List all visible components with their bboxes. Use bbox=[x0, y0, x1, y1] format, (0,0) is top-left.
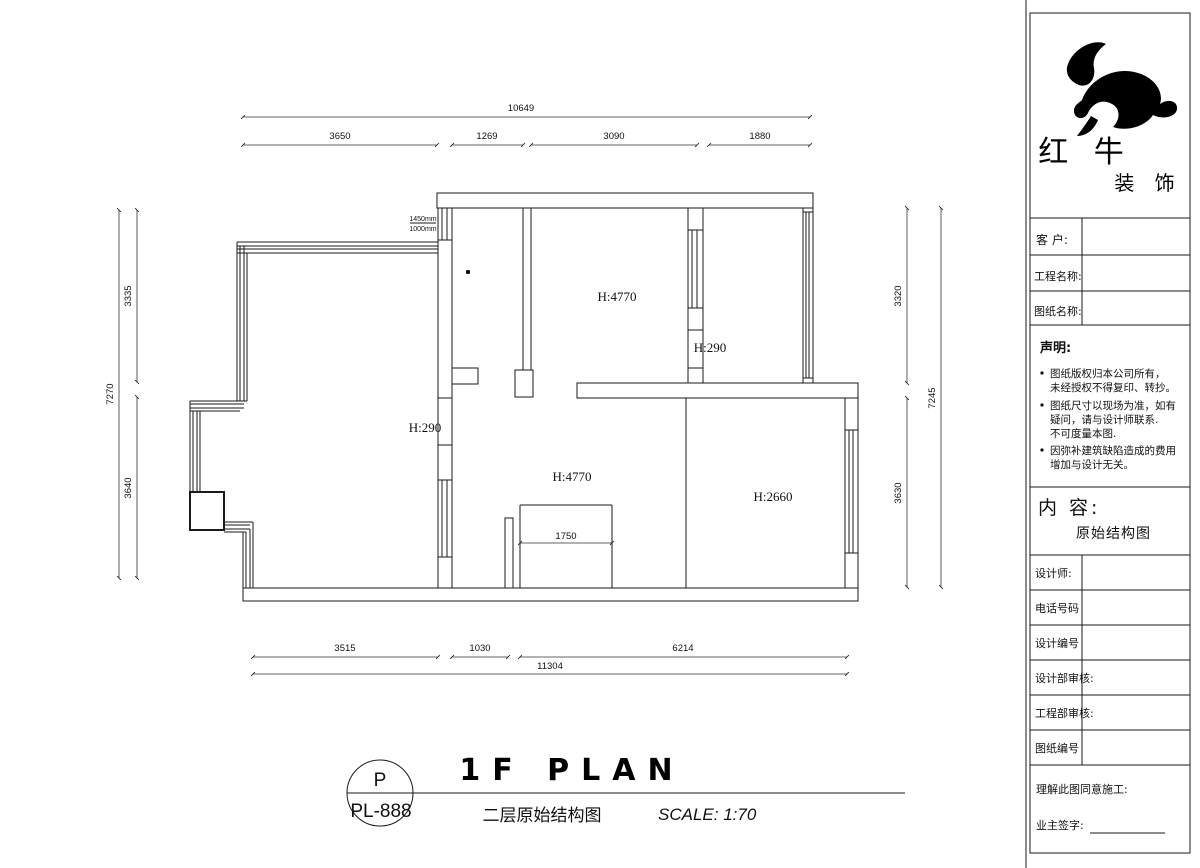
window-lower-horizontal bbox=[224, 522, 253, 532]
page-title-cn: 二层原始结构图 bbox=[483, 806, 602, 826]
statement-item2-line1: 图纸尺寸以现场为准，如有 bbox=[1050, 399, 1176, 412]
drawing-code-bottom: PL-888 bbox=[350, 801, 411, 822]
window-balcony-left bbox=[237, 242, 247, 401]
row-design-no-label: 设计编号 bbox=[1035, 636, 1079, 650]
statement-item3-line1: 因弥补建筑缺陷造成的费用 bbox=[1050, 444, 1176, 457]
floor-plan-canvas: H:4770 H:290 H:290 H:4770 H:2660 1750 14… bbox=[0, 0, 1200, 868]
label-left-beam-height: H:290 bbox=[409, 420, 442, 435]
dim-right-segbottom: 3630 bbox=[893, 482, 904, 503]
row-drawing-no-label: 图纸编号 bbox=[1035, 741, 1079, 755]
statement-item1-line1: 图纸版权归本公司所有， bbox=[1050, 367, 1166, 380]
point-marker bbox=[466, 270, 470, 274]
row-designer-label: 设计师: bbox=[1035, 567, 1072, 580]
brand-logo-bull-icon bbox=[1067, 42, 1177, 136]
row-engineering-review-label: 工程部审核: bbox=[1035, 706, 1094, 720]
dim-top-seg4: 1880 bbox=[749, 131, 770, 142]
window-left-middle-top bbox=[438, 208, 452, 240]
drawing-code-top: P bbox=[374, 770, 387, 791]
dim-right-segtop: 3320 bbox=[893, 285, 904, 306]
column-block bbox=[190, 492, 224, 530]
footer-agree-label: 理解此图同意施工: bbox=[1036, 782, 1128, 796]
window-step-vertical bbox=[190, 401, 200, 492]
title-block: 红 牛 装 饰 客 户: 工程名称: 图纸名称: 声明: 图纸版权归本公司所有，… bbox=[1026, 0, 1190, 868]
brand-name: 红 牛 bbox=[1038, 135, 1132, 170]
row-design-review-label: 设计部审核: bbox=[1035, 671, 1094, 685]
wall-stub-left bbox=[452, 368, 478, 384]
dim-left-segtop: 3335 bbox=[123, 285, 134, 306]
dim-right-overall: 7245 bbox=[927, 387, 938, 408]
label-right-room-height: H:2660 bbox=[754, 489, 793, 504]
statement-item2-line2: 疑问，请与设计师联系. bbox=[1050, 413, 1158, 426]
dim-top-seg3: 3090 bbox=[603, 131, 624, 142]
label-mid-room-height: H:4770 bbox=[553, 469, 592, 484]
floor-plan-walls bbox=[190, 193, 858, 601]
window-balcony-top bbox=[237, 242, 438, 253]
field-drawing-name-label: 图纸名称: bbox=[1034, 304, 1082, 318]
statement-item1-line2: 未经授权不得复印、转抄。 bbox=[1050, 381, 1176, 394]
dim-left-segbottom: 3640 bbox=[123, 477, 134, 498]
dim-bottom-overall: 11304 bbox=[537, 661, 563, 672]
content-value: 原始结构图 bbox=[1076, 526, 1151, 542]
statement-item2-line3: 不可度量本图. bbox=[1050, 427, 1116, 440]
field-project-name-label: 工程名称: bbox=[1034, 269, 1082, 283]
content-heading: 内 容: bbox=[1038, 497, 1100, 519]
wall-right-upper-window bbox=[803, 208, 813, 383]
label-inner-width: 1750 bbox=[555, 531, 576, 542]
statement-heading: 声明: bbox=[1039, 340, 1071, 356]
window-step-horizontal bbox=[190, 401, 247, 411]
label-window-sill: 1000mm bbox=[409, 226, 436, 233]
wall-middle-band bbox=[577, 383, 858, 398]
footer-owner-sign-label: 业主签字: bbox=[1036, 818, 1084, 832]
page-title-en: 1F PLAN bbox=[459, 753, 684, 788]
field-customer-label: 客 户: bbox=[1036, 232, 1068, 247]
wall-top-band bbox=[437, 193, 813, 208]
bullet-icon bbox=[1040, 448, 1043, 451]
label-window-width: 1450mm bbox=[409, 216, 436, 223]
brand-subname: 装 饰 bbox=[1114, 171, 1181, 195]
label-top-room-height: H:4770 bbox=[598, 289, 637, 304]
wall-bottom-band bbox=[243, 588, 858, 601]
dim-bottom-seg1: 3515 bbox=[334, 643, 355, 654]
dim-bottom-seg3: 6214 bbox=[672, 643, 693, 654]
bullet-icon bbox=[1040, 371, 1043, 374]
dim-top-seg1: 3650 bbox=[329, 131, 350, 142]
statement-item3-line2: 增加与设计无关。 bbox=[1050, 458, 1134, 471]
wall-interior-top bbox=[688, 208, 703, 383]
drawing-sheet: H:4770 H:290 H:290 H:4770 H:2660 1750 14… bbox=[0, 0, 1200, 868]
row-phone-label: 电话号码 bbox=[1035, 602, 1079, 615]
wall-right-lower-window bbox=[845, 398, 858, 601]
wall-inner-room bbox=[520, 505, 612, 588]
scale-label: SCALE: 1:70 bbox=[658, 805, 757, 824]
dim-left-overall: 7270 bbox=[105, 383, 116, 404]
bullet-icon bbox=[1040, 403, 1043, 406]
wall-foot-corridor bbox=[515, 370, 533, 397]
dim-top-seg2: 1269 bbox=[476, 131, 497, 142]
dim-bottom-seg2: 1030 bbox=[469, 643, 490, 654]
window-left-middle-lower bbox=[442, 480, 447, 557]
wall-interior-corridor bbox=[523, 208, 531, 370]
dim-top-overall: 10649 bbox=[508, 103, 534, 114]
title-area: P PL-888 1F PLAN 二层原始结构图 SCALE: 1:70 bbox=[347, 753, 905, 826]
wall-inner-step bbox=[505, 518, 513, 588]
label-top-beam-height: H:290 bbox=[694, 340, 727, 355]
